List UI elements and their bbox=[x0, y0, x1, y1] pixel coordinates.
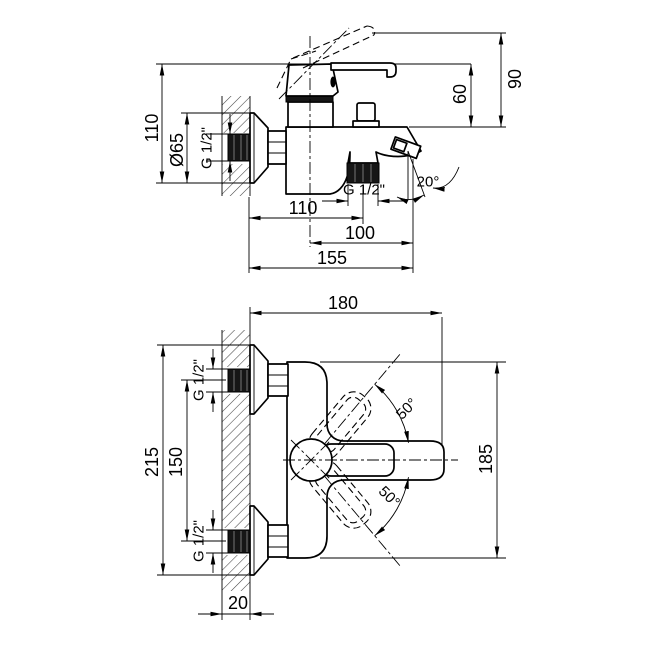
cap-ring bbox=[286, 96, 333, 102]
dim-label-width-180: 180 bbox=[328, 293, 358, 313]
dim-label-height-110: 110 bbox=[142, 114, 162, 143]
dim-label-swing-up: 50° bbox=[393, 395, 421, 423]
wall-flange-side bbox=[250, 113, 268, 183]
front-view: 50° 50° 180 215 150 G 1/2" G 1/2" 185 bbox=[142, 293, 506, 620]
dim-label-spacing-150: 150 bbox=[166, 447, 186, 477]
mixer-side-body bbox=[228, 63, 421, 194]
dim-label-top-inlet-thread: G 1/2" bbox=[191, 359, 208, 401]
dim-label-handle-raised-90: 90 bbox=[505, 69, 525, 89]
technical-drawing-page: 110 Ø65 G 1/2" 60 90 G 1/2" 20° bbox=[0, 0, 650, 650]
dim-label-handle-height-60: 60 bbox=[450, 84, 470, 104]
dim-label-bottom-inlet-thread: G 1/2" bbox=[191, 520, 208, 562]
cartridge-housing bbox=[288, 102, 333, 127]
dim-label-axis-to-tip: 100 bbox=[345, 223, 375, 243]
side-view: 110 Ø65 G 1/2" 60 90 G 1/2" 20° bbox=[142, 26, 525, 273]
dim-label-wall-to-outlet: 110 bbox=[289, 198, 318, 218]
dim-label-body-height-185: 185 bbox=[476, 444, 496, 474]
dim-label-inlet-thread-side: G 1/2" bbox=[199, 127, 216, 169]
mixer-front-body bbox=[228, 345, 458, 575]
dim-label-wall-thickness-20: 20 bbox=[228, 593, 248, 613]
spout-angle-callout: 20° bbox=[397, 151, 459, 200]
diverter-knob bbox=[357, 103, 375, 121]
dim-label-spout-angle: 20° bbox=[417, 174, 440, 191]
dim-label-outlet-thread: G 1/2" bbox=[343, 182, 385, 199]
dim-label-wall-to-tip: 155 bbox=[317, 248, 347, 268]
dim-label-flange-diameter: Ø65 bbox=[167, 133, 187, 167]
bath-mixer-technical-drawing: 110 Ø65 G 1/2" 60 90 G 1/2" 20° bbox=[0, 0, 650, 650]
dim-label-height-215: 215 bbox=[142, 447, 162, 477]
connection-nut-side bbox=[268, 131, 286, 164]
handle-lever bbox=[331, 63, 396, 77]
handle-pivot-dot bbox=[330, 77, 335, 88]
